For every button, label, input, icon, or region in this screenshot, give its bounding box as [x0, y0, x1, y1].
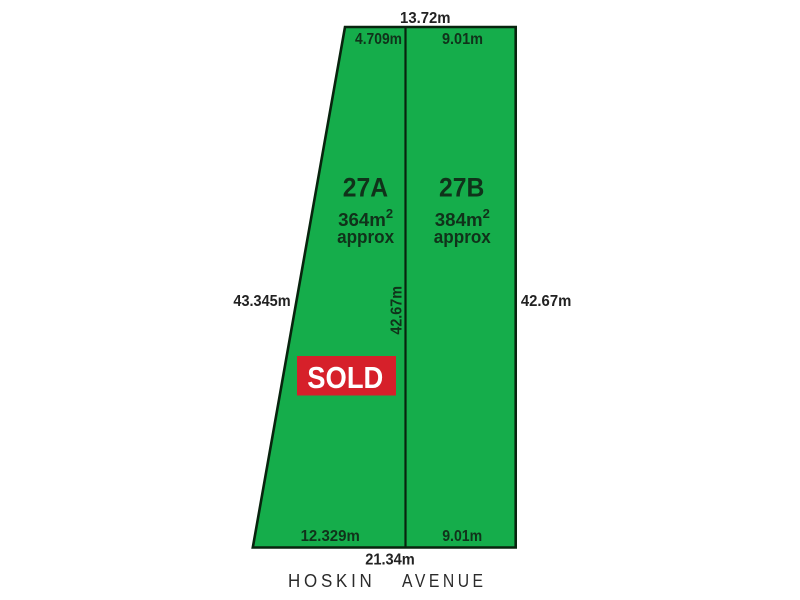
svg-text:43.345m: 43.345m — [233, 293, 290, 310]
svg-text:27A: 27A — [343, 173, 388, 203]
svg-text:21.34m: 21.34m — [365, 552, 415, 569]
svg-text:27B: 27B — [439, 173, 484, 203]
svg-text:4.709m: 4.709m — [355, 31, 402, 48]
svg-text:13.72m: 13.72m — [400, 10, 451, 27]
svg-text:12.329m: 12.329m — [301, 528, 360, 545]
svg-text:42.67m: 42.67m — [388, 286, 405, 335]
svg-text:approx: approx — [337, 226, 395, 247]
svg-text:9.01m: 9.01m — [442, 528, 482, 545]
svg-text:42.67m: 42.67m — [521, 293, 571, 310]
svg-text:HOSKIN: HOSKIN — [288, 571, 376, 591]
svg-text:SOLD: SOLD — [307, 360, 383, 395]
svg-text:9.01m: 9.01m — [442, 31, 483, 48]
svg-text:approx: approx — [434, 226, 492, 247]
svg-text:AVENUE: AVENUE — [402, 571, 487, 591]
